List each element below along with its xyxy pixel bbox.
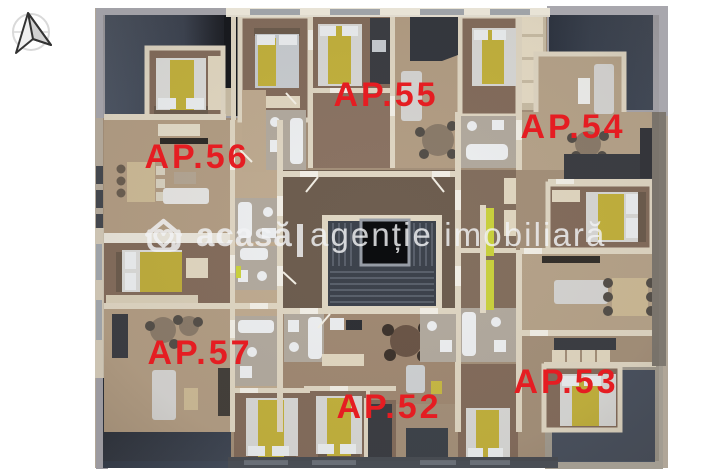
svg-text:AP.55: AP.55 (333, 76, 438, 114)
svg-text:AP.57: AP.57 (147, 334, 252, 372)
svg-text:AP.54: AP.54 (520, 108, 625, 146)
svg-text:acasă: acasă (196, 216, 293, 253)
svg-text:AP.56: AP.56 (144, 138, 249, 176)
svg-text:AP.52: AP.52 (336, 388, 441, 426)
svg-text:AP.53: AP.53 (513, 363, 618, 401)
svg-text:agenție imobiliară: agenție imobiliară (310, 216, 606, 253)
